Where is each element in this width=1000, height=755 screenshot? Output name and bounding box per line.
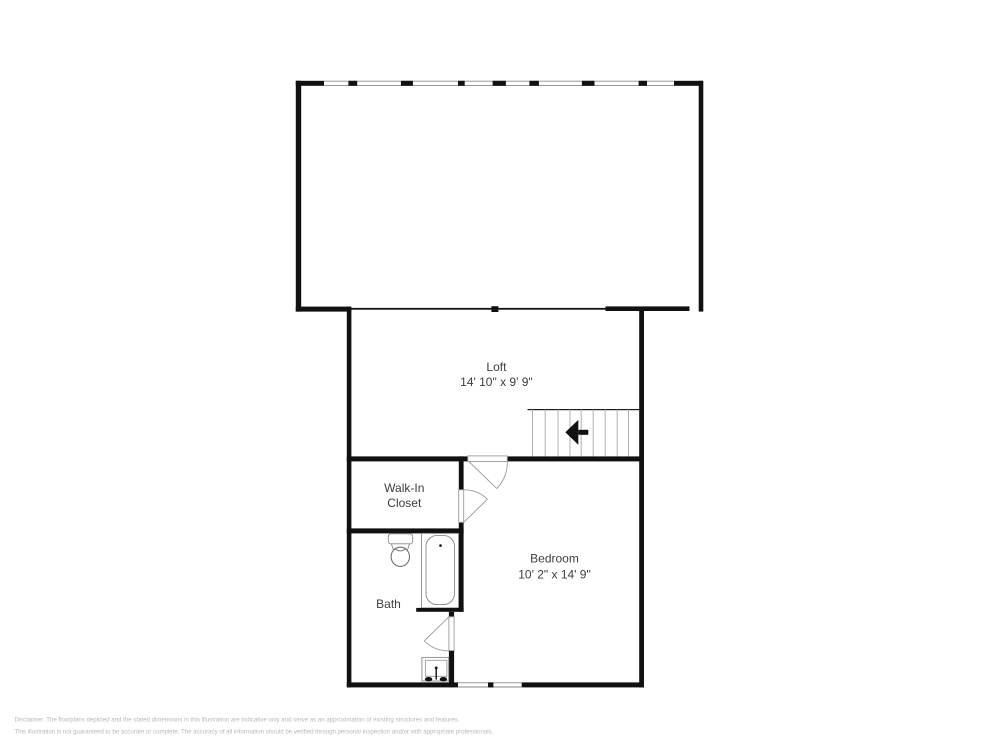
svg-text:Bedroom: Bedroom [530, 552, 579, 566]
svg-text:Loft: Loft [486, 360, 507, 374]
svg-text:Bath: Bath [376, 597, 401, 611]
svg-text:Disclaimer: The floorplans dep: Disclaimer: The floorplans depicted and … [15, 717, 460, 724]
svg-text:14' 10" x 9' 9": 14' 10" x 9' 9" [460, 375, 532, 389]
svg-text:Walk-In: Walk-In [384, 481, 424, 495]
svg-text:10' 2" x 14' 9": 10' 2" x 14' 9" [518, 568, 590, 582]
svg-text:Closet: Closet [387, 496, 422, 510]
svg-text:This illustration is not guara: This illustration is not guaranteed to b… [15, 728, 494, 735]
